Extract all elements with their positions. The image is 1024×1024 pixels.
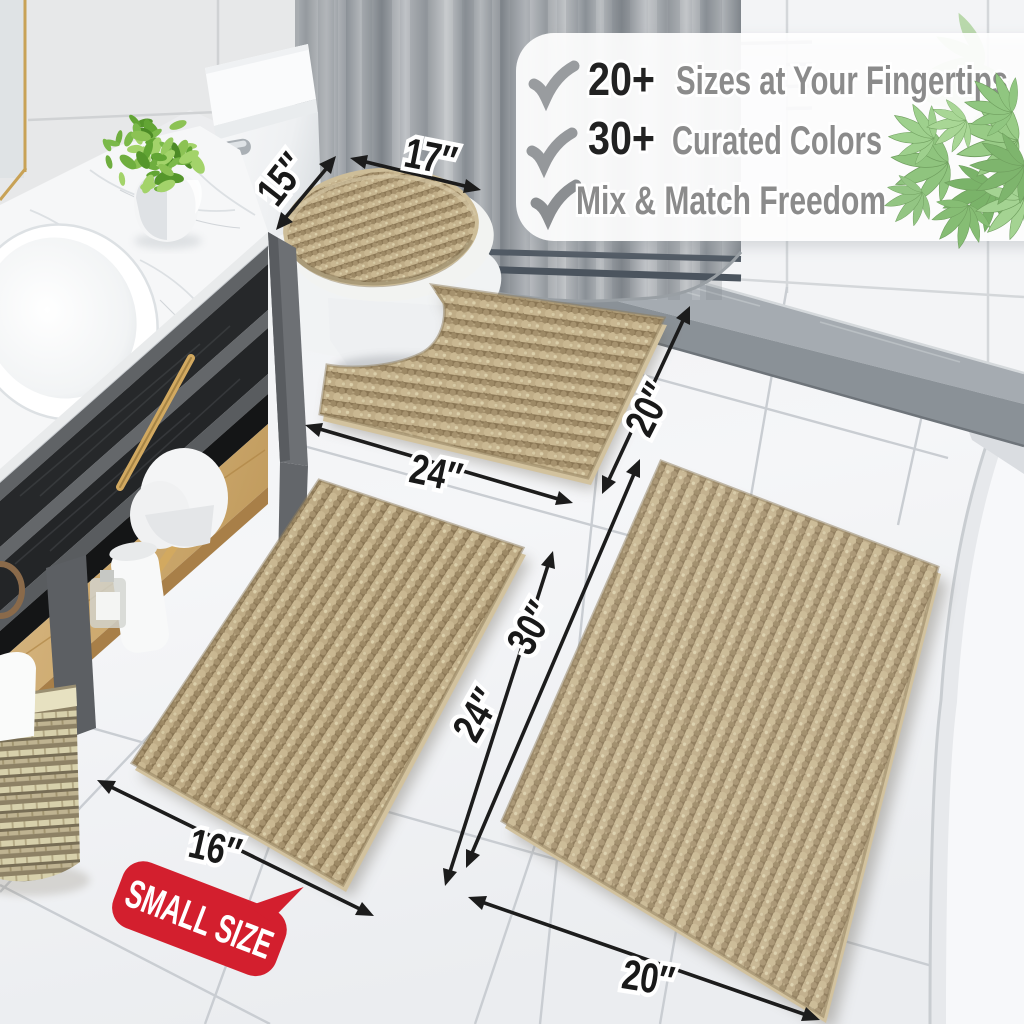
svg-text:20+: 20+ — [588, 53, 655, 105]
svg-text:Curated Colors: Curated Colors — [672, 119, 882, 163]
svg-text:30+: 30+ — [588, 112, 655, 164]
svg-text:Sizes at Your Fingertips: Sizes at Your Fingertips — [676, 59, 1008, 103]
svg-text:17″: 17″ — [401, 129, 461, 185]
svg-text:20″: 20″ — [619, 950, 678, 1005]
svg-text:Mix & Match Freedom: Mix & Match Freedom — [576, 179, 886, 223]
